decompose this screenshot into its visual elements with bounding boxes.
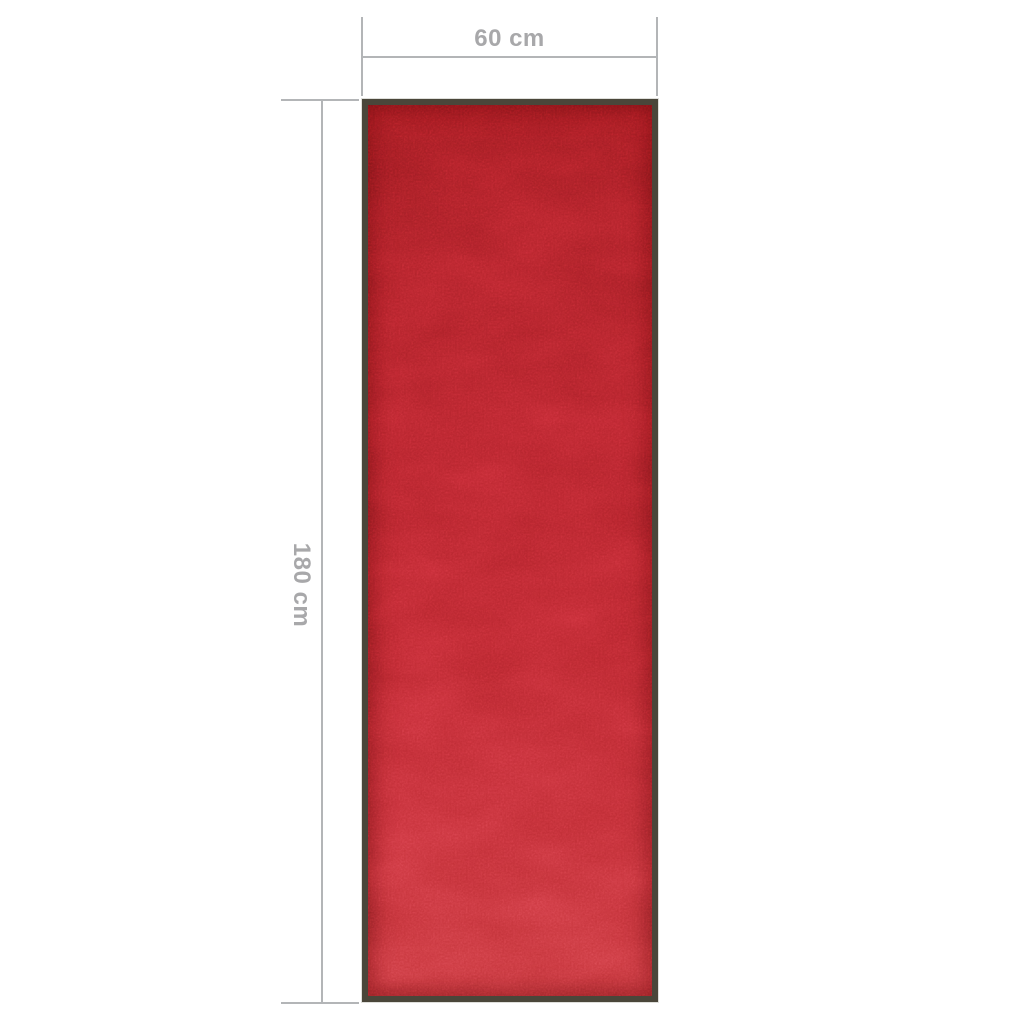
width-dimension-label: 60 cm [362,25,657,53]
carpet-grain-texture [368,105,652,996]
height-dimension-label: 180 cm [287,543,315,627]
doormat-carpet-pile [368,105,652,996]
height-dim-top-tick [281,99,359,101]
product-dimension-diagram: 60 cm 180 cm [0,0,1024,1024]
height-dimension-line [321,100,323,1003]
doormat [362,99,658,1002]
width-dimension-line [362,56,657,58]
height-dim-bottom-tick [281,1002,359,1004]
